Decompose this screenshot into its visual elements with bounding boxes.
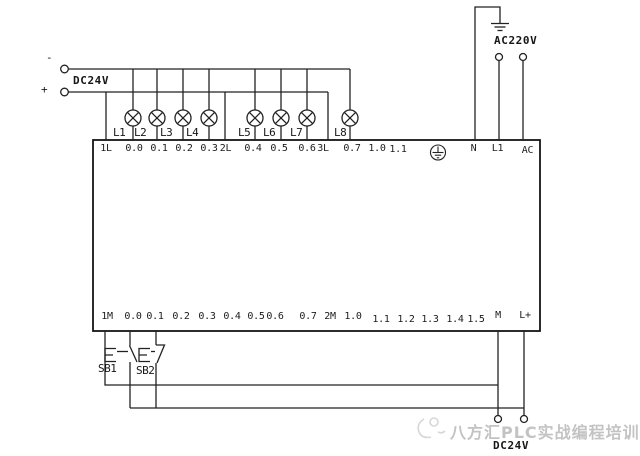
lamp-supply-wires: [133, 69, 350, 110]
lamp-label-l8: L8: [334, 127, 346, 138]
lamp-label-l1: L1: [113, 127, 125, 138]
terminal-bottom-0-5: 0.5: [247, 312, 264, 322]
dc24v-source-symbol: [61, 65, 69, 96]
terminal-bottom-0-1: 0.1: [146, 312, 163, 322]
lamp-label-l5: L5: [238, 127, 250, 138]
terminal-top-n: N: [471, 144, 477, 154]
lamp-label-l3: L3: [160, 127, 172, 138]
button-label-sb1: SB1: [98, 363, 116, 374]
terminal-bottom-1m: 1M: [101, 312, 112, 322]
terminal-bottom-1-2: 1.2: [397, 315, 414, 325]
lamp-l2-icon: [149, 110, 165, 126]
watermark-text: 八方汇PLC实战编程培训: [450, 419, 640, 443]
terminal-top-0-3: 0.3: [200, 144, 217, 154]
terminal-top-1-1: 1.1: [389, 145, 406, 155]
lamp-label-l6: L6: [263, 127, 275, 138]
terminal-bottom-0-6: 0.6: [266, 312, 283, 322]
terminal-bottom-m: M: [495, 311, 501, 321]
input-common-wires: [105, 331, 524, 416]
minus-terminal-label: -: [46, 52, 52, 63]
lamp-icons: [125, 110, 358, 126]
ac220v-source-symbol: [496, 54, 527, 61]
terminal-bottom-1-0: 1.0: [344, 312, 361, 322]
terminal-top-l1: L1: [492, 144, 503, 154]
terminal-bottom-2m: 2M: [324, 312, 335, 322]
terminal-top-0-7: 0.7: [343, 144, 360, 154]
terminal-top-0-2: 0.2: [175, 144, 192, 154]
earth-ground-icon: [491, 24, 509, 31]
terminal-top-0-1: 0.1: [150, 144, 167, 154]
wiring-graphics: [0, 0, 640, 456]
terminal-bottom-1-4: 1.4: [446, 315, 463, 325]
lamp-l3-icon: [175, 110, 191, 126]
lamp-label-l4: L4: [186, 127, 198, 138]
lamp-label-l7: L7: [290, 127, 302, 138]
terminal-top-1-0: 1.0: [368, 144, 385, 154]
lamp-l8-icon: [342, 110, 358, 126]
terminal-bottom-lplus: L+: [519, 311, 530, 321]
lamp-l6-icon: [273, 110, 289, 126]
terminal-top-3l: 3L: [317, 144, 328, 154]
plus-terminal-label: +: [41, 84, 47, 95]
lamp-l7-icon: [299, 110, 315, 126]
terminal-top-1l: 1L: [100, 144, 111, 154]
terminal-bottom-0-2: 0.2: [172, 312, 189, 322]
terminal-bottom-0-7: 0.7: [299, 312, 316, 322]
plc-box: [93, 140, 540, 331]
terminal-bottom-0-3: 0.3: [198, 312, 215, 322]
pe-terminal-icon: [431, 145, 446, 160]
watermark-logo-icon: [418, 418, 445, 437]
lamp-l4-icon: [201, 110, 217, 126]
button-label-sb2: SB2: [136, 365, 154, 376]
terminal-top-2l: 2L: [220, 144, 231, 154]
terminal-bottom-1-5: 1.5: [467, 315, 484, 325]
terminal-bottom-1-1: 1.1: [372, 315, 389, 325]
terminal-top-0-4: 0.4: [244, 144, 261, 154]
ac220v-label: AC220V: [494, 35, 537, 46]
terminal-top-0-6: 0.6: [298, 144, 315, 154]
lamp-l1-icon: [125, 110, 141, 126]
plc-wiring-diagram: - + DC24V AC220V L1 L2 L3 L4 L5 L6 L7 L8…: [0, 0, 640, 456]
terminal-top-0-0: 0.0: [125, 144, 142, 154]
terminal-bottom-0-0: 0.0: [124, 312, 141, 322]
terminal-bottom-1-3: 1.3: [421, 315, 438, 325]
lamp-label-l2: L2: [134, 127, 146, 138]
lamp-l5-icon: [247, 110, 263, 126]
terminal-top-0-5: 0.5: [270, 144, 287, 154]
dc24v-label: DC24V: [73, 75, 109, 86]
terminal-top-ac: AC: [522, 146, 533, 156]
terminal-bottom-0-4: 0.4: [223, 312, 240, 322]
